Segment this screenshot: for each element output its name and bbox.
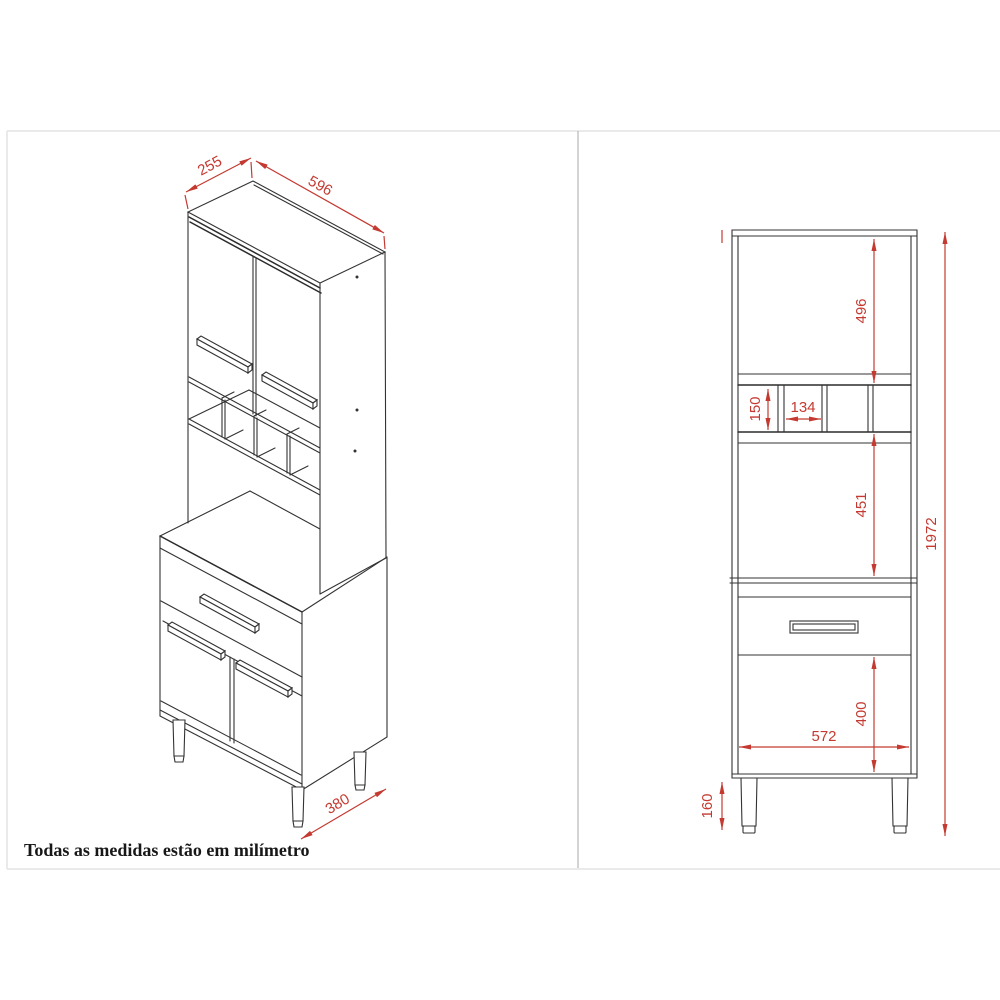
dim-label-top-depth: 255 — [195, 153, 225, 180]
elevation-drawer-handle — [790, 621, 858, 633]
hutch-right-door-handle — [262, 372, 317, 409]
dim-label-total-height: 1972 — [923, 517, 940, 550]
base-left-door-handle — [168, 622, 225, 660]
shelf-pin-hole — [356, 276, 359, 279]
dim-label-lower-height: 400 — [853, 701, 870, 726]
dim-label-top-width: 596 — [305, 173, 335, 200]
elevation-legs — [741, 778, 908, 833]
open-shelf-space — [160, 491, 320, 536]
isometric-view: 255 596 380 — [160, 153, 387, 839]
dim-label-base-depth: 380 — [323, 790, 353, 817]
shelf-pin-hole — [356, 409, 359, 412]
base-cabinet — [160, 536, 387, 790]
hutch-left-door-handle — [197, 336, 252, 373]
dim-label-niche-height: 150 — [747, 396, 764, 421]
measurement-note: Todas as medidas estão em milímetro — [24, 840, 310, 861]
shelf-pin-hole — [354, 450, 357, 453]
product-dimensions-page: 255 596 380 — [0, 0, 1000, 1000]
dim-label-middle-height: 451 — [853, 492, 870, 517]
dim-label-inner-width: 572 — [811, 728, 836, 745]
front-elevation-view: 496 150 134 451 400 572 160 1972 — [699, 230, 945, 836]
dim-label-niche-cell-width: 134 — [790, 399, 815, 416]
dim-label-upper-height: 496 — [853, 298, 870, 323]
hutch-top — [188, 181, 385, 293]
elevation-carcass — [730, 230, 917, 778]
page-frame — [7, 131, 1000, 869]
elevation-dimensions: 496 150 134 451 400 572 160 1972 — [699, 230, 945, 836]
dim-label-leg-height: 160 — [699, 793, 716, 818]
base-right-door-handle — [236, 660, 292, 697]
